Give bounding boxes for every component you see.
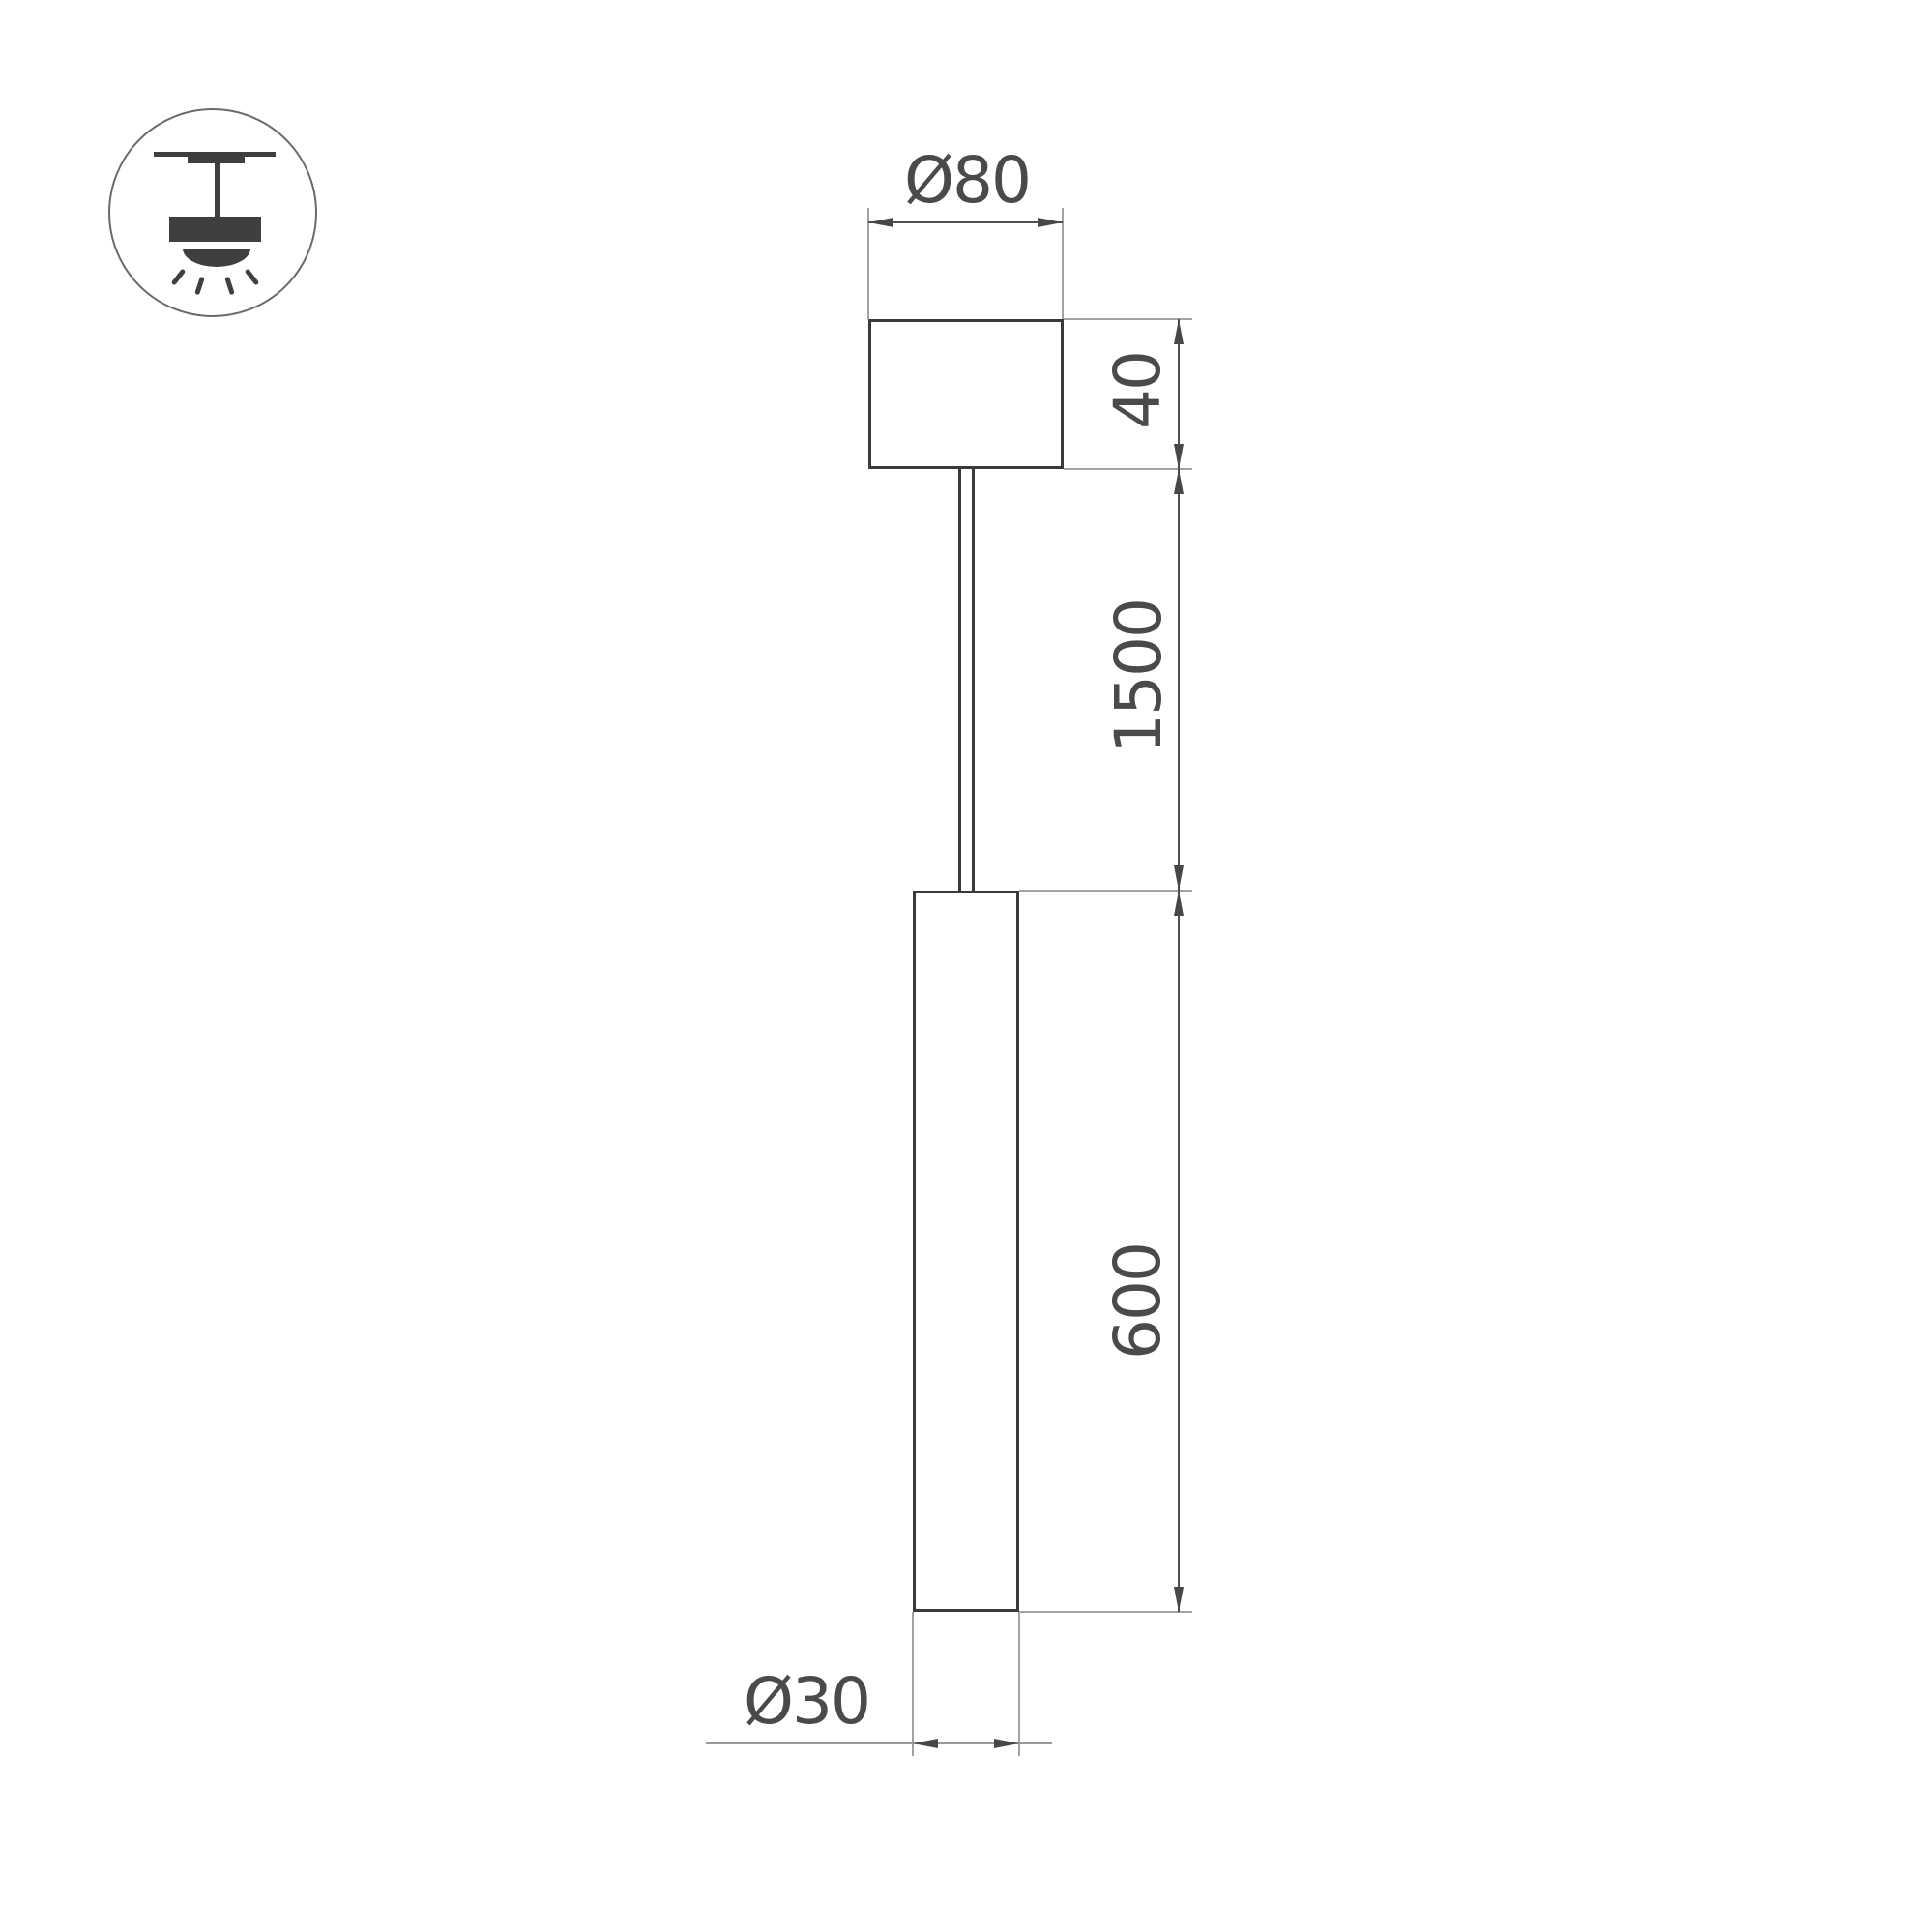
arrowhead-right-icon bbox=[1038, 218, 1063, 227]
extension-line-tube-top bbox=[1019, 890, 1192, 892]
suspension-length-label: 1500 bbox=[1107, 600, 1171, 754]
extension-line-tube-bottom bbox=[1019, 1611, 1192, 1613]
icon-light-ray bbox=[194, 277, 205, 296]
icon-suspension-stem bbox=[215, 161, 220, 217]
arrowhead-up-icon bbox=[1174, 891, 1184, 916]
dimension-line-canopy-diameter bbox=[868, 221, 1063, 223]
ceiling-pendant-light-icon bbox=[108, 108, 317, 317]
icon-light-ray bbox=[171, 268, 187, 285]
icon-light-ray bbox=[245, 268, 260, 285]
tube-diameter-label: Ø30 bbox=[744, 1670, 869, 1734]
arrowhead-left-icon bbox=[913, 1739, 938, 1748]
canopy-height-label: 40 bbox=[1106, 352, 1170, 429]
dimension-line-vertical-chain bbox=[1178, 319, 1180, 1612]
tube-outline bbox=[913, 891, 1019, 1612]
canopy-outline bbox=[868, 319, 1064, 469]
arrowhead-right-icon bbox=[994, 1739, 1019, 1748]
arrowhead-left-icon bbox=[868, 218, 893, 227]
extension-line-tube-left bbox=[912, 1612, 914, 1756]
tube-length-label: 600 bbox=[1106, 1244, 1170, 1360]
arrowhead-down-icon bbox=[1174, 865, 1184, 891]
arrowhead-up-icon bbox=[1174, 319, 1184, 344]
icon-light-ray bbox=[224, 277, 235, 296]
arrowhead-down-icon bbox=[1174, 444, 1184, 469]
suspension-wire-outline bbox=[958, 469, 975, 893]
arrowhead-up-icon bbox=[1174, 469, 1184, 494]
icon-light-dome bbox=[183, 249, 250, 267]
extension-line-tube-right bbox=[1018, 1612, 1020, 1756]
arrowhead-down-icon bbox=[1174, 1587, 1184, 1612]
canopy-diameter-label: Ø80 bbox=[904, 149, 1030, 213]
icon-lamp-body bbox=[169, 217, 261, 242]
technical-drawing-canvas: Ø80 40 1500 600 Ø30 bbox=[0, 0, 1932, 1932]
